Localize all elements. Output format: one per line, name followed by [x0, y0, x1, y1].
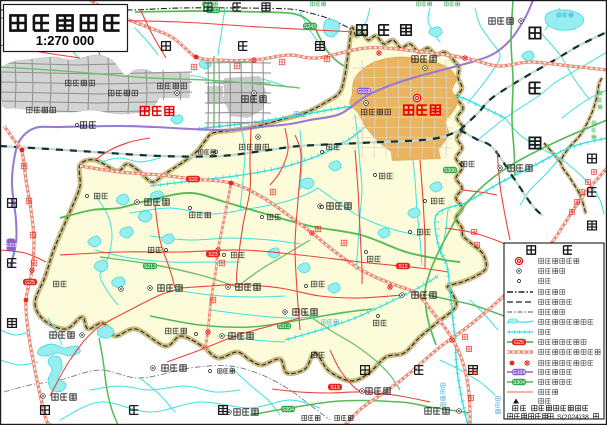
svg-text:S12: S12 — [398, 264, 407, 270]
svg-text:G104: G104 — [513, 370, 526, 376]
svg-text:G318: G318 — [358, 89, 371, 95]
svg-text:G25: G25 — [514, 340, 524, 346]
svg-text:S304: S304 — [282, 407, 294, 413]
svg-text:S32: S32 — [188, 177, 197, 183]
svg-text:S(2024)38: S(2024)38 — [557, 414, 589, 421]
svg-text:S304: S304 — [513, 380, 525, 386]
svg-text:S13: S13 — [330, 385, 339, 391]
svg-text:S313: S313 — [278, 324, 290, 330]
svg-text:S23: S23 — [208, 252, 217, 258]
svg-text:S243: S243 — [304, 24, 316, 30]
svg-text:G25: G25 — [25, 280, 35, 286]
svg-text:S306: S306 — [444, 168, 456, 174]
svg-text:G318: G318 — [5, 243, 18, 249]
svg-text:1:270 000: 1:270 000 — [36, 33, 95, 48]
svg-text:S213: S213 — [144, 264, 156, 270]
